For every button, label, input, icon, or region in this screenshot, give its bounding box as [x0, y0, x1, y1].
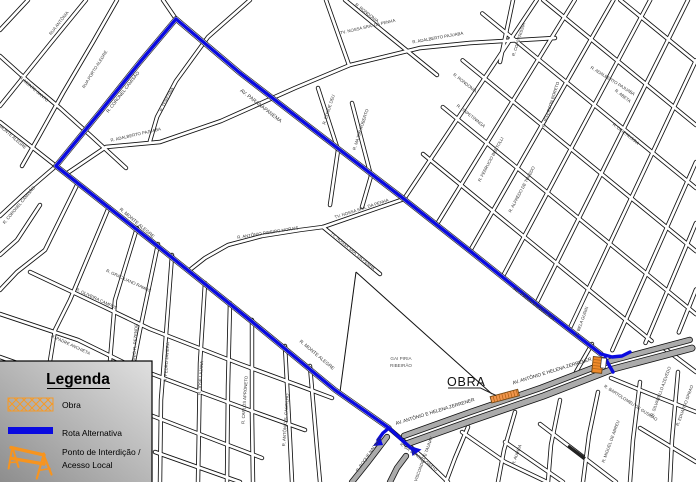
svg-text:Rota Alternativa: Rota Alternativa	[62, 428, 122, 438]
svg-text:RIBEIRÃO: RIBEIRÃO	[390, 362, 412, 368]
svg-text:Ponto de Interdição /: Ponto de Interdição /	[62, 447, 141, 457]
svg-text:OBRA: OBRA	[447, 375, 486, 389]
svg-text:Acesso Local: Acesso Local	[62, 460, 113, 470]
svg-text:Legenda: Legenda	[46, 371, 110, 388]
svg-text:Obra: Obra	[62, 400, 81, 410]
svg-text:GAI PIRIA: GAI PIRIA	[390, 356, 412, 361]
